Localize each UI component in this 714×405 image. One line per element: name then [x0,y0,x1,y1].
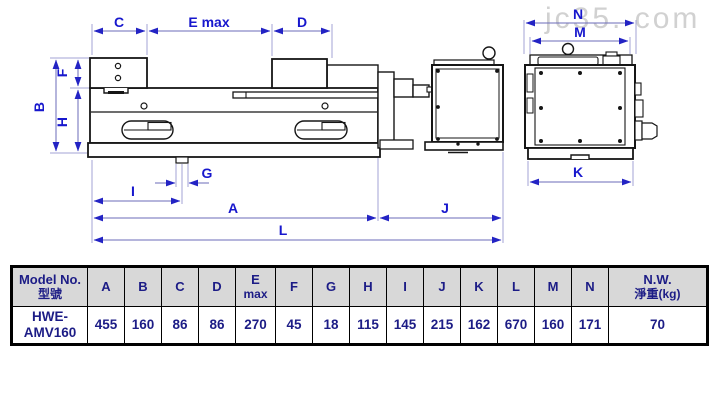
dim-label-l: L [279,222,288,238]
column-header-j: J [424,267,461,307]
dim-label-a: A [228,200,238,216]
value-cell-l: 670 [498,307,535,345]
column-header-n-w-: N.W.淨重(kg) [609,267,708,307]
column-header-g: G [313,267,350,307]
dim-label-h: H [54,117,70,127]
value-cell-k: 162 [461,307,498,345]
dim-label-f: F [54,68,70,77]
column-header-i: I [387,267,424,307]
column-header-a: A [88,267,125,307]
column-header-e: Emax [236,267,276,307]
model-number-cell: HWE-AMV160 [12,307,88,345]
value-cell-e: 270 [236,307,276,345]
side-view [525,44,657,160]
dim-label-j: J [441,200,449,216]
front-view [88,47,503,163]
value-cell-d: 86 [199,307,236,345]
column-header-l: L [498,267,535,307]
column-header-h: H [350,267,387,307]
column-header-b: B [125,267,162,307]
technical-drawing: C E max D N M B F H G I A J L K [0,0,714,262]
dim-label-g: G [202,165,213,181]
dim-label-c: C [114,14,124,30]
column-header-m: M [535,267,572,307]
value-cell-j: 215 [424,307,461,345]
column-header-k: K [461,267,498,307]
dim-label-n: N [573,6,583,22]
spec-table-container: Model No.型號ABCDEmaxFGHIJKLMNN.W.淨重(kg) H… [10,265,709,346]
column-header-c: C [162,267,199,307]
value-cell-a: 455 [88,307,125,345]
column-header-n: N [572,267,609,307]
page: jc35. com [0,0,714,405]
value-cell-i: 145 [387,307,424,345]
column-header-d: D [199,267,236,307]
value-cell-c: 86 [162,307,199,345]
value-cell-n-w-: 70 [609,307,708,345]
value-cell-g: 18 [313,307,350,345]
dim-label-d: D [297,14,307,30]
column-header-f: F [276,267,313,307]
dim-label-m: M [574,24,586,40]
value-cell-b: 160 [125,307,162,345]
dim-label-e-max: E max [188,14,229,30]
dim-label-b: B [31,102,47,112]
column-header-model-no-: Model No.型號 [12,267,88,307]
spec-table: Model No.型號ABCDEmaxFGHIJKLMNN.W.淨重(kg) H… [10,265,709,346]
dim-label-i: I [131,183,135,199]
dim-label-k: K [573,164,583,180]
value-cell-m: 160 [535,307,572,345]
value-cell-h: 115 [350,307,387,345]
value-cell-n: 171 [572,307,609,345]
value-cell-f: 45 [276,307,313,345]
